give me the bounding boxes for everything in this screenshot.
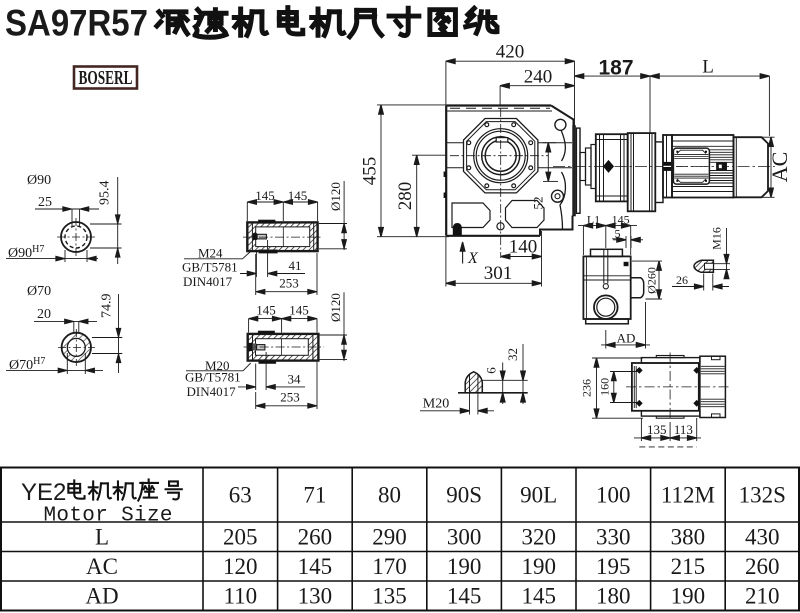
svg-text:90S: 90S: [446, 483, 482, 508]
svg-text:145: 145: [447, 584, 482, 609]
svg-text:20: 20: [37, 307, 51, 322]
svg-text:280: 280: [395, 182, 416, 211]
svg-text:145: 145: [289, 303, 309, 318]
svg-text:170: 170: [372, 554, 407, 579]
svg-text:M24: M24: [198, 246, 223, 261]
svg-text:74.9: 74.9: [100, 294, 115, 319]
svg-text:112M: 112M: [661, 483, 715, 508]
svg-text:110: 110: [223, 584, 257, 609]
svg-text:32: 32: [505, 348, 520, 361]
svg-text:BOSERL: BOSERL: [79, 67, 133, 89]
svg-text:145: 145: [256, 303, 276, 318]
svg-text:YE2: YE2: [21, 479, 66, 506]
svg-text:90L: 90L: [520, 483, 557, 508]
svg-text:210: 210: [745, 584, 780, 609]
svg-text:25: 25: [38, 195, 52, 210]
svg-text:430: 430: [745, 525, 780, 550]
svg-text:95.4: 95.4: [98, 181, 113, 206]
svg-text:6: 6: [484, 367, 499, 374]
svg-text:290: 290: [372, 525, 407, 550]
svg-text:205: 205: [223, 525, 258, 550]
svg-text:113: 113: [674, 422, 693, 437]
svg-text:71: 71: [303, 483, 326, 508]
svg-text:145: 145: [255, 188, 275, 203]
svg-text:80: 80: [378, 483, 401, 508]
svg-text:130: 130: [298, 584, 333, 609]
svg-text:SA97R57: SA97R57: [5, 3, 148, 44]
svg-text:455: 455: [360, 157, 381, 186]
svg-text:AD: AD: [617, 331, 636, 346]
svg-text:52: 52: [531, 197, 546, 210]
svg-text:301: 301: [484, 263, 513, 284]
svg-text:100: 100: [596, 483, 631, 508]
svg-text:63: 63: [229, 483, 252, 508]
svg-text:DIN4017: DIN4017: [183, 274, 233, 289]
svg-text:Ø120: Ø120: [328, 182, 343, 211]
svg-text:240: 240: [524, 67, 553, 88]
svg-text:190: 190: [521, 554, 556, 579]
svg-text:145: 145: [521, 584, 556, 609]
svg-text:X: X: [467, 250, 479, 267]
svg-text:215: 215: [671, 554, 706, 579]
svg-text:380: 380: [671, 525, 706, 550]
svg-text:L: L: [702, 57, 714, 78]
svg-text:M20: M20: [423, 397, 449, 412]
svg-text:145: 145: [298, 554, 333, 579]
svg-text:195: 195: [596, 554, 631, 579]
svg-text:GB/T5781: GB/T5781: [185, 370, 241, 385]
svg-text:Ø70: Ø70: [27, 284, 51, 299]
svg-text:AD: AD: [85, 584, 118, 609]
svg-text:260: 260: [298, 525, 333, 550]
svg-text:320: 320: [521, 525, 556, 550]
svg-text:132S: 132S: [739, 483, 786, 508]
svg-text:L: L: [95, 525, 109, 550]
svg-text:DIN4017: DIN4017: [187, 384, 237, 399]
svg-text:420: 420: [496, 42, 525, 63]
svg-text:330: 330: [596, 525, 631, 550]
svg-text:Ø120: Ø120: [328, 293, 343, 322]
svg-text:Ø90: Ø90: [27, 173, 51, 188]
svg-text:260: 260: [745, 554, 780, 579]
svg-text:41: 41: [289, 258, 302, 273]
svg-text:236: 236: [580, 379, 594, 397]
svg-text:190: 190: [447, 554, 482, 579]
svg-text:34: 34: [288, 372, 302, 387]
svg-text:135: 135: [647, 422, 667, 437]
svg-text:GB/T5781: GB/T5781: [182, 260, 238, 275]
svg-text:AC: AC: [86, 554, 118, 579]
svg-text:180: 180: [596, 584, 631, 609]
svg-text:300: 300: [447, 525, 482, 550]
svg-text:26: 26: [676, 273, 688, 287]
svg-text:M16: M16: [710, 227, 724, 250]
svg-text:160: 160: [598, 378, 612, 396]
svg-text:253: 253: [279, 276, 299, 291]
svg-text:190: 190: [671, 584, 706, 609]
svg-text:135: 135: [372, 584, 407, 609]
svg-text:120: 120: [223, 554, 258, 579]
svg-text:253: 253: [280, 390, 300, 405]
